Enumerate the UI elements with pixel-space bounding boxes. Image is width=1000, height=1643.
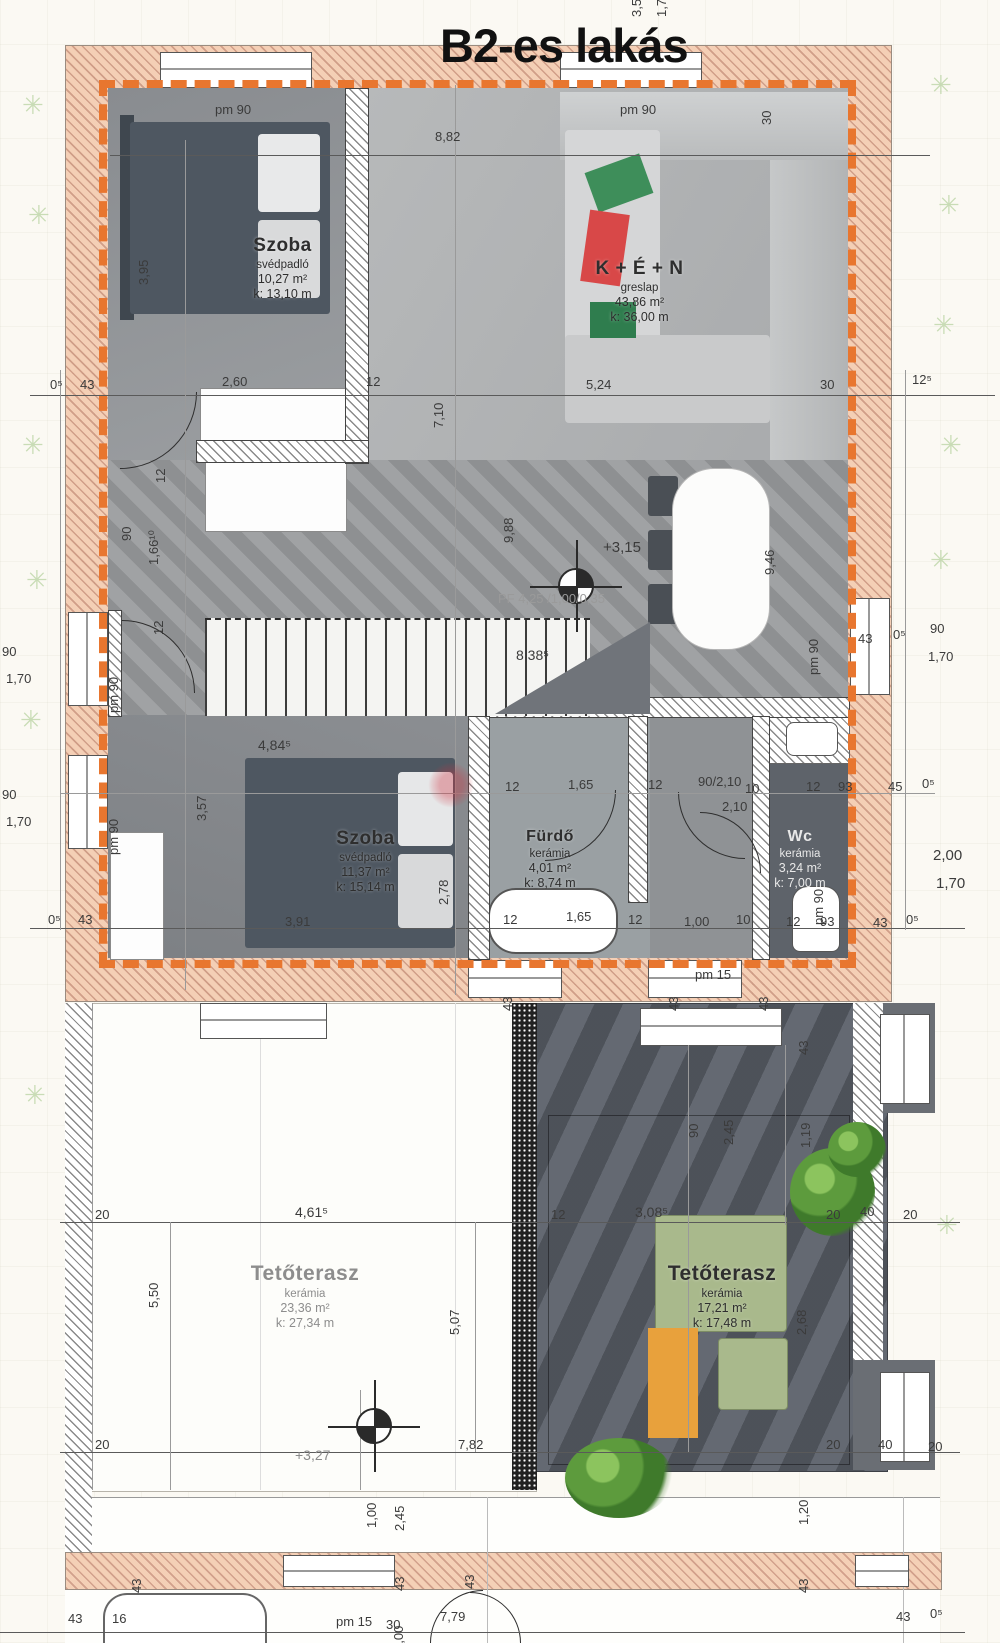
dim-label: 90 bbox=[2, 788, 16, 801]
dim-label: 20 bbox=[95, 1208, 109, 1221]
dim-label: 90/2,10 bbox=[698, 775, 741, 788]
dim-label: 90 bbox=[930, 622, 944, 635]
dim-label: 43 bbox=[68, 1612, 82, 1625]
dim-label: 3,57 bbox=[195, 796, 208, 821]
dim-label: 9,46 bbox=[763, 550, 776, 575]
dim-label: 12 bbox=[505, 780, 519, 793]
room-name: Wc bbox=[755, 828, 845, 846]
dim-label: 43 bbox=[797, 1579, 810, 1593]
dim-label: 2,60 bbox=[222, 375, 247, 388]
dim-label: 43 bbox=[873, 916, 887, 929]
room-name: Tetőterasz bbox=[215, 1262, 395, 1286]
dim-label: +3,15 bbox=[603, 540, 641, 555]
window bbox=[880, 1014, 930, 1104]
room-name: Fürdő bbox=[490, 828, 610, 846]
room-perimeter: k: 13,10 m bbox=[200, 287, 365, 301]
dim-label: 30 bbox=[760, 111, 773, 125]
plant bbox=[565, 1438, 673, 1518]
dim-label: 12 bbox=[366, 375, 380, 388]
dim-label: 1,70 bbox=[6, 672, 31, 685]
dim-label: 2,45 bbox=[393, 1506, 406, 1531]
window bbox=[283, 1555, 395, 1587]
dimension-line bbox=[110, 155, 930, 156]
room-floor-finish: svédpadló bbox=[283, 852, 448, 864]
dim-label: 43 bbox=[896, 1610, 910, 1623]
lounger bbox=[648, 1328, 698, 1438]
tree-icon: ✳ bbox=[930, 70, 952, 101]
dimension-line bbox=[30, 395, 995, 396]
dimension-line bbox=[475, 1222, 476, 1452]
room-perimeter: k: 8,74 m bbox=[490, 876, 610, 890]
room-perimeter: k: 17,48 m bbox=[632, 1316, 812, 1330]
room-label-terrace-left: Tetőterasz kerámia 23,36 m² k: 27,34 m bbox=[215, 1262, 395, 1330]
tree-icon: ✳ bbox=[26, 565, 48, 596]
kitchen-cabinets bbox=[770, 160, 848, 460]
dim-label: 40 bbox=[878, 1438, 892, 1451]
dim-label: 20 bbox=[903, 1208, 917, 1221]
dining-table bbox=[672, 468, 770, 650]
dim-label: 2,00 bbox=[933, 848, 962, 863]
dim-label: 1,65 bbox=[568, 778, 593, 791]
dim-label: 12 bbox=[503, 913, 517, 926]
dim-label: 1,00 bbox=[684, 915, 709, 928]
dimension-line bbox=[185, 140, 186, 990]
room-area: 43,86 m² bbox=[552, 295, 727, 309]
window bbox=[855, 1555, 909, 1587]
room-area: 11,37 m² bbox=[283, 865, 448, 879]
dim-label: 2,78 bbox=[437, 880, 450, 905]
dim-label: pm 90 bbox=[812, 889, 825, 925]
room-label-bedroom1: Szoba svédpadló 10,27 m² k: 13,10 m bbox=[200, 235, 365, 301]
dimension-line bbox=[360, 1390, 361, 1490]
dim-label: 3,5 bbox=[630, 0, 643, 17]
partition-wall bbox=[468, 716, 490, 960]
partition-wall bbox=[628, 716, 648, 903]
room-area: 10,27 m² bbox=[200, 272, 365, 286]
dim-label: 1,19 bbox=[799, 1123, 812, 1148]
dimension-line bbox=[170, 1222, 171, 1490]
dim-label: 1,65 bbox=[566, 910, 591, 923]
dim-label: 30 bbox=[820, 378, 834, 391]
dim-label: 7,79 bbox=[440, 1610, 465, 1623]
dim-label: 43 bbox=[393, 1577, 406, 1591]
bathtub-lower bbox=[103, 1593, 267, 1643]
dim-label: 20 bbox=[95, 1438, 109, 1451]
dim-label: 0⁵ bbox=[922, 777, 935, 790]
terrace-left bbox=[65, 1003, 537, 1492]
dim-label: 1,7 bbox=[655, 0, 668, 17]
wardrobe bbox=[205, 462, 347, 532]
dim-label: 1,00 bbox=[392, 1626, 405, 1643]
tree-icon: ✳ bbox=[936, 1210, 958, 1241]
dim-label: 1,00 bbox=[365, 1503, 378, 1528]
room-name: Szoba bbox=[200, 235, 365, 257]
dimension-line bbox=[60, 370, 61, 930]
dimension-line bbox=[785, 1045, 786, 1225]
dim-label: 12 bbox=[628, 913, 642, 926]
dim-label: pm 15 bbox=[695, 968, 731, 981]
dim-label: 90 bbox=[120, 527, 133, 541]
dim-label: 3,95 bbox=[137, 260, 150, 285]
dim-label: 2,45 bbox=[722, 1120, 735, 1145]
dim-label: 90 bbox=[2, 645, 16, 658]
dimension-line bbox=[60, 1452, 960, 1453]
dimension-line bbox=[0, 1632, 965, 1633]
dim-label: 20 bbox=[826, 1208, 840, 1221]
room-perimeter: k: 15,14 m bbox=[283, 880, 448, 894]
dim-label: 12 bbox=[648, 778, 662, 791]
dim-label: 5,24 bbox=[586, 378, 611, 391]
dim-label: 10 bbox=[745, 782, 759, 795]
room-perimeter: k: 36,00 m bbox=[552, 310, 727, 324]
floor-plan-canvas: B2-es lakás ✳ ✳ ✳ ✳ ✳ ✳ ✳ ✳ ✳ ✳ ✳ ✳ bbox=[0, 0, 1000, 1643]
dim-label: 0⁵ bbox=[50, 378, 63, 391]
room-area: 4,01 m² bbox=[490, 861, 610, 875]
room-floor-finish: kerámia bbox=[490, 848, 610, 860]
dim-label: 43 bbox=[858, 632, 872, 645]
lower-wall-stub bbox=[65, 1490, 92, 1555]
tree-icon: ✳ bbox=[940, 430, 962, 461]
window bbox=[68, 612, 108, 706]
dim-label: 43 bbox=[501, 997, 514, 1011]
room-area: 23,36 m² bbox=[215, 1301, 395, 1315]
window bbox=[468, 960, 562, 998]
dim-label: 12⁵ bbox=[912, 373, 932, 386]
dim-label: 20 bbox=[928, 1440, 942, 1453]
dimension-line bbox=[455, 85, 456, 995]
room-label-wc: Wc kerámia 3,24 m² k: 7,00 m bbox=[755, 828, 845, 890]
dimension-line bbox=[688, 1045, 689, 1452]
outdoor-chair bbox=[718, 1338, 788, 1410]
terrace-left-wall bbox=[65, 1003, 93, 1490]
dim-label: 8,82 bbox=[435, 130, 460, 143]
grid-line bbox=[455, 1003, 456, 1490]
dim-label: 8,38⁵ bbox=[516, 648, 549, 662]
terrace-right-wall bbox=[512, 1003, 537, 1490]
tree-icon: ✳ bbox=[22, 90, 44, 121]
dim-label: 16 bbox=[112, 1612, 126, 1625]
window bbox=[850, 598, 890, 695]
room-floor-finish: kerámia bbox=[215, 1288, 395, 1300]
dim-label: 20 bbox=[826, 1438, 840, 1451]
dim-label: 0⁵ bbox=[930, 1607, 943, 1620]
dim-label: PF 4,25 /1,00/0,35 bbox=[498, 592, 605, 605]
dim-label: 1,20 bbox=[797, 1500, 810, 1525]
room-area: 3,24 m² bbox=[755, 861, 845, 875]
dim-label: 45 bbox=[888, 780, 902, 793]
dim-label: 12 bbox=[786, 915, 800, 928]
dim-label: 0⁵ bbox=[48, 913, 61, 926]
dimension-line bbox=[60, 793, 935, 794]
room-area: 17,21 m² bbox=[632, 1301, 812, 1315]
room-name: Szoba bbox=[283, 828, 448, 850]
tree-icon: ✳ bbox=[933, 310, 955, 341]
room-perimeter: k: 27,34 m bbox=[215, 1316, 395, 1330]
window bbox=[160, 52, 312, 88]
room-name: K + É + N bbox=[552, 258, 727, 280]
room-floor-finish: greslap bbox=[552, 282, 727, 294]
window bbox=[68, 755, 108, 849]
dim-label: 9,88 bbox=[502, 518, 515, 543]
page-title: B2-es lakás bbox=[440, 18, 688, 73]
tree-icon: ✳ bbox=[24, 1080, 46, 1111]
dim-label: 0⁵ bbox=[906, 913, 919, 926]
dim-label: 43 bbox=[797, 1041, 810, 1055]
dim-label: +3,27 bbox=[295, 1448, 330, 1462]
dim-label: 12 bbox=[152, 621, 165, 635]
dim-label: 4,84⁵ bbox=[258, 738, 291, 752]
room-label-terrace-right: Tetőterasz kerámia 17,21 m² k: 17,48 m bbox=[632, 1262, 812, 1330]
dim-label: 4,61⁵ bbox=[295, 1205, 328, 1219]
dim-label: 43 bbox=[78, 913, 92, 926]
plant bbox=[828, 1122, 886, 1177]
dimension-line bbox=[905, 370, 906, 930]
dim-label: pm 90 bbox=[620, 103, 656, 116]
dim-label: pm 90 bbox=[107, 819, 120, 855]
room-label-bedroom2: Szoba svédpadló 11,37 m² k: 15,14 m bbox=[283, 828, 448, 894]
tree-icon: ✳ bbox=[22, 430, 44, 461]
room-floor-finish: kerámia bbox=[755, 848, 845, 860]
tree-icon: ✳ bbox=[930, 545, 952, 576]
dim-label: 7,82 bbox=[458, 1438, 483, 1451]
dim-label: pm 90 bbox=[215, 103, 251, 116]
dim-label: 5,07 bbox=[448, 1310, 461, 1335]
level-marker bbox=[356, 1408, 392, 1444]
dim-label: pm 90 bbox=[807, 639, 820, 675]
grid-line bbox=[260, 1003, 261, 1490]
tree-icon: ✳ bbox=[20, 705, 42, 736]
room-label-bathroom: Fürdő kerámia 4,01 m² k: 8,74 m bbox=[490, 828, 610, 890]
dim-label: 2,68 bbox=[795, 1310, 808, 1335]
dim-label: 10 bbox=[736, 913, 750, 926]
room-name: Tetőterasz bbox=[632, 1262, 812, 1286]
room-label-kitchen: K + É + N greslap 43,86 m² k: 36,00 m bbox=[552, 258, 727, 324]
dim-label: 1,66¹⁰ bbox=[147, 530, 160, 565]
dim-label: 43 bbox=[667, 997, 680, 1011]
terrace-door bbox=[200, 1003, 327, 1039]
dim-label: 43 bbox=[757, 997, 770, 1011]
dimension-line bbox=[60, 1222, 960, 1223]
dim-label: 93 bbox=[838, 780, 852, 793]
dim-label: 3,08⁵ bbox=[635, 1205, 668, 1219]
dim-label: 43 bbox=[130, 1579, 143, 1593]
room-floor-finish: kerámia bbox=[632, 1288, 812, 1300]
dim-label: pm 15 bbox=[336, 1615, 372, 1628]
washbasin bbox=[786, 722, 838, 756]
dim-label: 1,70 bbox=[936, 876, 965, 891]
dim-label: 1,70 bbox=[6, 815, 31, 828]
dim-label: pm 90 bbox=[107, 677, 120, 713]
dim-label: 1,70 bbox=[928, 650, 953, 663]
watermark bbox=[428, 762, 474, 808]
dim-label: 3,91 bbox=[285, 915, 310, 928]
tree-icon: ✳ bbox=[28, 200, 50, 231]
dim-label: 7,10 bbox=[432, 403, 445, 428]
dim-label: 12 bbox=[806, 780, 820, 793]
dim-label: 43 bbox=[80, 378, 94, 391]
room-floor-finish: svédpadló bbox=[200, 259, 365, 271]
dim-label: 90 bbox=[687, 1124, 700, 1138]
dim-label: 12 bbox=[551, 1208, 565, 1221]
terrace-door bbox=[640, 1008, 782, 1046]
dim-label: 43 bbox=[463, 1575, 476, 1589]
bed1-pillow bbox=[258, 134, 320, 212]
tree-icon: ✳ bbox=[938, 190, 960, 221]
dim-label: 5,50 bbox=[147, 1283, 160, 1308]
dim-label: 2,10 bbox=[722, 800, 747, 813]
dim-label: 0⁵ bbox=[893, 628, 906, 641]
dim-label: 12 bbox=[154, 469, 167, 483]
partition-wall bbox=[196, 440, 369, 463]
dim-label: 40 bbox=[860, 1205, 874, 1218]
room-perimeter: k: 7,00 m bbox=[755, 876, 845, 890]
